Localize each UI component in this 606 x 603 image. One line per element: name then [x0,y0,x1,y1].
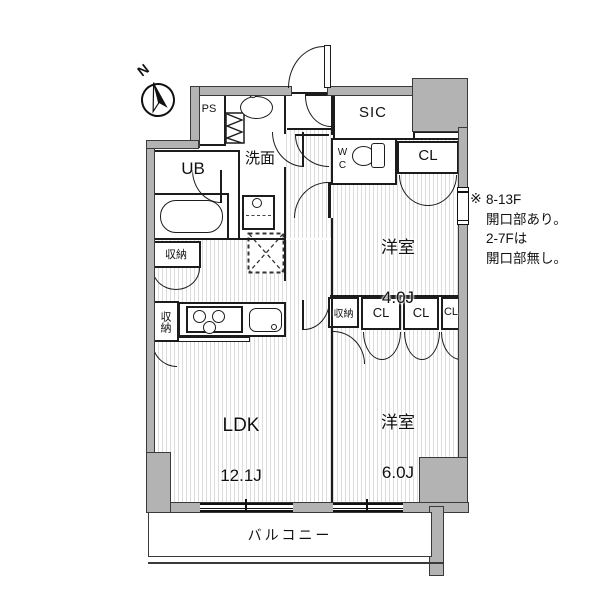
closet-c-label: CL [441,306,461,318]
storage-kitchen-label: 収納 [157,306,173,338]
ldk-label: LDK 12.1J [191,388,291,513]
storage-bath-label: 収納 [153,246,199,262]
kitchen-counter-lip [178,337,250,342]
genkan-step-line [287,128,331,130]
kitchen-sink-icon [249,308,282,332]
wall-top-left [191,87,291,95]
wall-washroom-hall-upper [284,94,286,134]
washroom-label: 洗面 [236,147,284,168]
closet-b-label: CL [404,305,438,320]
room6-label: 洋室 6.0J [348,385,448,510]
storage-mid-label: 収納 [329,305,358,320]
door-arc-sic [305,96,331,127]
wall-notch-horizontal [147,141,198,148]
stove-burner-2 [212,310,225,323]
door-leaf-room4 [328,182,331,218]
wall-washroom-bottom [153,238,284,240]
room6-name: 洋室 [348,410,448,435]
compass-icon: N [132,62,184,124]
door-leaf-bath [220,170,222,203]
annotation-marker: ※ [470,190,486,207]
entrance-door-leaf [324,45,331,88]
wall-hall-sic [331,95,333,135]
window-right-wall [457,187,469,225]
ldk-size: 12.1J [191,463,291,488]
wall-top-right [328,87,415,95]
wall-wc-bottom [331,183,397,185]
closet-a-label: CL [363,305,399,320]
closet-top-label: CL [401,147,455,164]
ps-label: PS [201,102,217,116]
wall-left [147,141,154,463]
ldk-name: LDK [191,413,291,438]
louver-icon [225,112,245,144]
balcony-outer-line [148,562,443,564]
entrance-threshold-line [291,92,328,94]
washing-machine-faucet-icon [252,198,262,208]
annotation-text: 8-13F 開口部あり。 2-7Fは 開口部無し。 [486,190,598,268]
door-leaf-storage-mid [302,300,304,330]
room4-name: 洋室 [348,235,448,260]
wall-wc-right [395,140,397,183]
bathtub-icon [160,200,223,233]
balcony-label: バルコニー [248,525,333,545]
wall-notch-vertical [191,87,199,147]
column-block-bottom-left [147,453,170,512]
toilet-tank-icon [371,143,385,168]
room6-size: 6.0J [348,460,448,485]
wall-ldk-room6 [331,364,333,503]
door-arc-entrance [288,46,324,88]
wall-right [459,128,467,462]
door-leaf-washroom [302,132,304,167]
balcony: バルコニー [148,512,432,557]
floor-plan: バルコニー N PS UB 洗面 WC SIC CL 洋室 4.0J 収納 CL… [0,0,606,603]
kitchen-sink-drain [271,324,277,330]
wc-label: WC [336,146,349,172]
wall-washroom-hall-lower [284,167,286,281]
column-block-top-right [413,79,467,131]
stove-burner-3 [203,321,216,334]
wall-under-block [413,131,459,133]
ub-label: UB [170,159,216,179]
washing-machine-dash [246,215,271,216]
wall-hall-wc [331,167,333,184]
washbasin-icon [240,96,273,119]
stove-burner-1 [193,310,206,323]
sic-label: SIC [347,104,399,121]
